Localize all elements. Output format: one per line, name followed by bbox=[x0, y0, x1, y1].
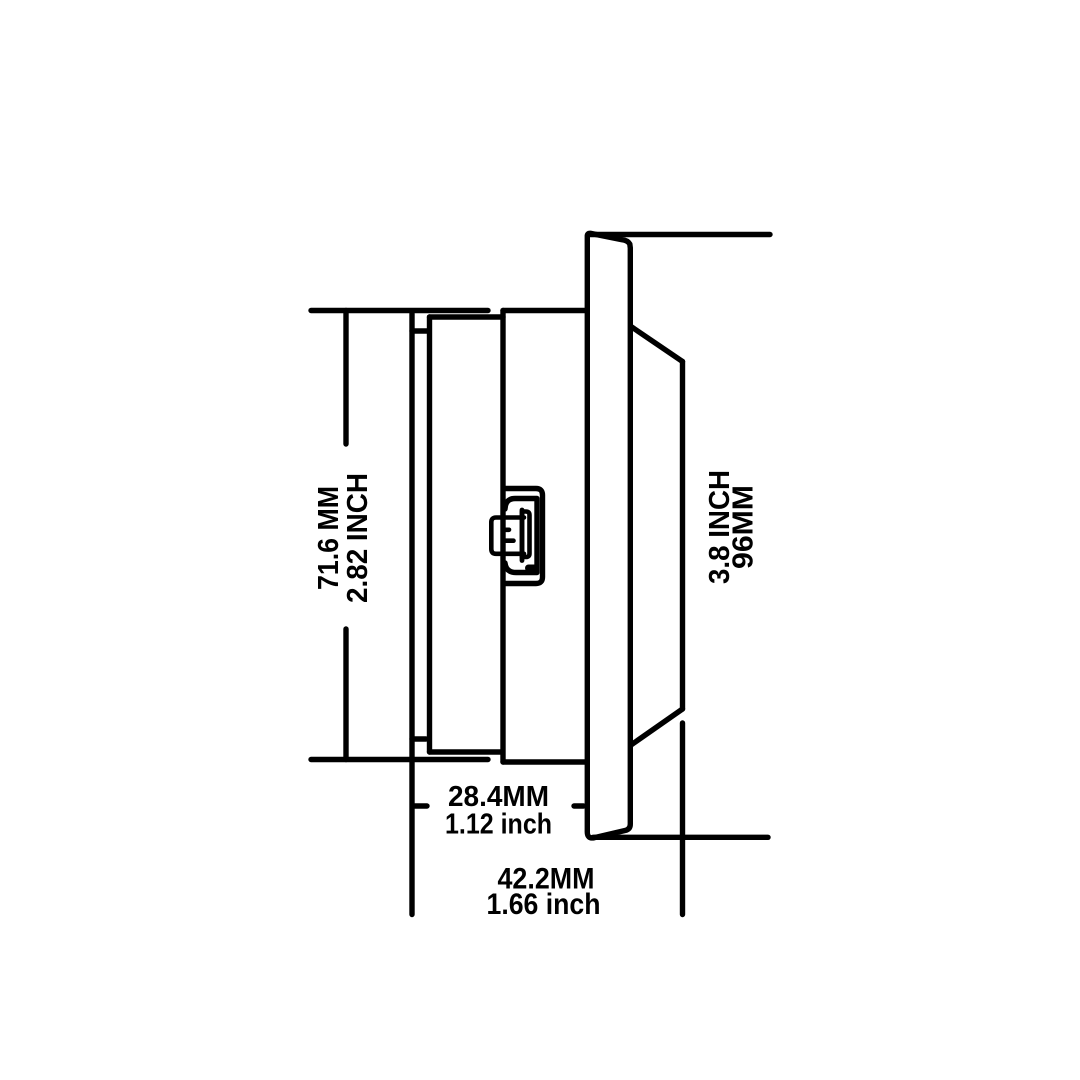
svg-text:2.82 INCH: 2.82 INCH bbox=[342, 473, 374, 603]
svg-text:71.6 MM: 71.6 MM bbox=[313, 486, 345, 590]
svg-text:96MM: 96MM bbox=[728, 485, 760, 569]
svg-text:1.66 inch: 1.66 inch bbox=[487, 888, 601, 921]
svg-text:1.12 inch: 1.12 inch bbox=[445, 809, 552, 841]
